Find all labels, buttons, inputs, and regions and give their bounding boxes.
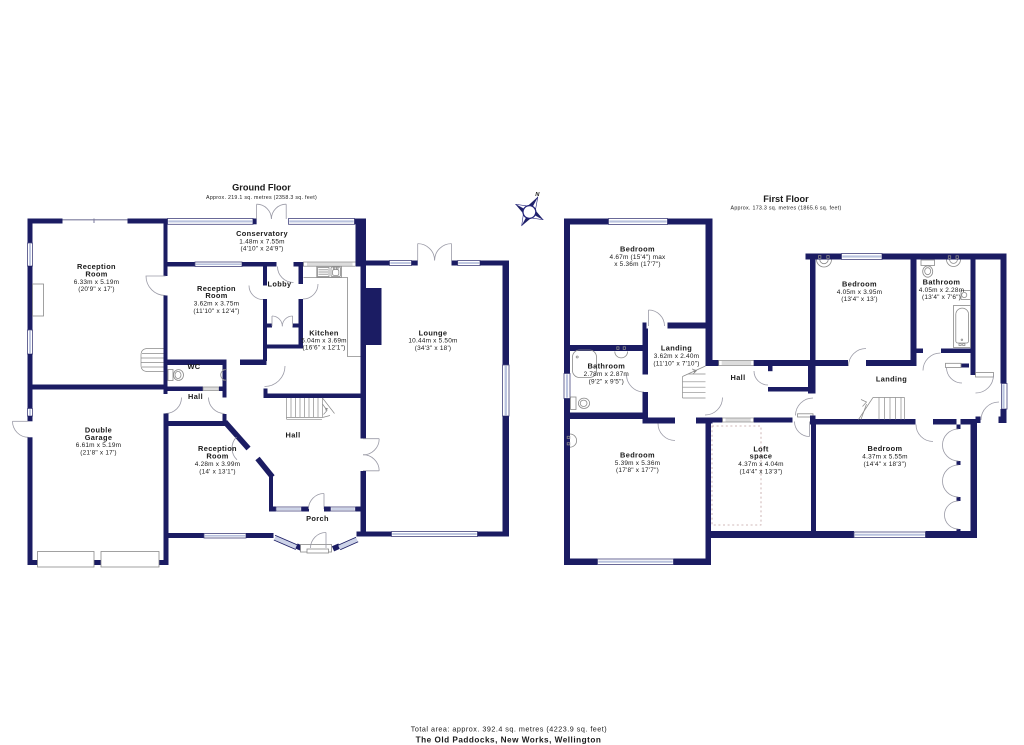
svg-text:5.39m x 5.36m: 5.39m x 5.36m <box>615 460 660 467</box>
svg-text:(9'2" x 9'5"): (9'2" x 9'5") <box>589 378 624 385</box>
svg-text:(13'4" x 13'): (13'4" x 13') <box>841 296 878 303</box>
svg-text:Hall: Hall <box>731 373 746 382</box>
svg-text:Landing: Landing <box>876 375 907 384</box>
svg-text:3.62m x 2.40m: 3.62m x 2.40m <box>654 353 699 360</box>
svg-text:First Floor: First Floor <box>763 194 809 204</box>
svg-text:Porch: Porch <box>306 514 329 523</box>
svg-text:N: N <box>535 192 540 198</box>
svg-text:4.05m x 2.28m: 4.05m x 2.28m <box>919 287 964 294</box>
svg-text:Approx. 219.1 sq. metres (2358: Approx. 219.1 sq. metres (2358.3 sq. fee… <box>206 195 317 201</box>
svg-text:Room: Room <box>206 452 228 461</box>
svg-text:4.37m x 4.04m: 4.37m x 4.04m <box>738 461 783 468</box>
svg-text:Bedroom: Bedroom <box>620 450 655 459</box>
svg-text:The Old Paddocks, New Works, W: The Old Paddocks, New Works, Wellington <box>416 736 602 745</box>
svg-text:4.37m x 5.55m: 4.37m x 5.55m <box>862 454 907 461</box>
svg-text:(4'10" x 24'9"): (4'10" x 24'9") <box>241 245 284 252</box>
svg-text:space: space <box>750 452 773 461</box>
svg-text:Total area: approx. 392.4 sq.: Total area: approx. 392.4 sq. metres (42… <box>411 725 607 734</box>
svg-text:Garage: Garage <box>85 433 113 442</box>
svg-text:2.78m x 2.87m: 2.78m x 2.87m <box>584 371 629 378</box>
svg-text:4.05m x 3.95m: 4.05m x 3.95m <box>837 289 882 296</box>
svg-text:(14' x 13'1"): (14' x 13'1") <box>199 468 236 475</box>
svg-text:x 5.36m (17'7"): x 5.36m (17'7") <box>614 261 661 268</box>
svg-text:Hall: Hall <box>286 431 301 440</box>
svg-text:4.67m (15'4") max: 4.67m (15'4") max <box>610 254 666 261</box>
svg-text:Kitchen: Kitchen <box>309 328 339 337</box>
svg-text:Bedroom: Bedroom <box>842 279 877 288</box>
svg-text:(11'10" x 7'10"): (11'10" x 7'10") <box>653 360 699 367</box>
svg-text:(20'9" x 17'): (20'9" x 17') <box>78 286 115 293</box>
svg-text:(16'6" x 12'1"): (16'6" x 12'1") <box>303 344 346 351</box>
svg-text:(14'4" x 18'3"): (14'4" x 18'3") <box>864 461 907 468</box>
svg-text:(17'8" x 17'7"): (17'8" x 17'7") <box>616 467 659 474</box>
svg-text:Hall: Hall <box>188 392 203 401</box>
svg-text:1.48m x 7.55m: 1.48m x 7.55m <box>239 238 284 245</box>
svg-text:(21'8" x 17'): (21'8" x 17') <box>80 450 117 457</box>
svg-text:6.61m x 5.19m: 6.61m x 5.19m <box>76 442 121 449</box>
svg-text:Lobby: Lobby <box>268 279 292 288</box>
svg-text:Bedroom: Bedroom <box>620 244 655 253</box>
svg-text:Ground Floor: Ground Floor <box>232 182 291 192</box>
svg-text:(11'10" x 12'4"): (11'10" x 12'4") <box>193 308 239 315</box>
svg-text:Lounge: Lounge <box>419 328 448 337</box>
svg-text:(34'3" x 18'): (34'3" x 18') <box>415 345 452 352</box>
svg-text:6.33m x 5.19m: 6.33m x 5.19m <box>74 279 119 286</box>
svg-text:Landing: Landing <box>661 344 692 353</box>
svg-text:Approx. 173.3 sq. metres (1865: Approx. 173.3 sq. metres (1865.6 sq. fee… <box>731 206 842 212</box>
svg-text:(13'4" x 7'6"): (13'4" x 7'6") <box>922 294 961 301</box>
svg-text:Bedroom: Bedroom <box>868 444 903 453</box>
svg-text:10.44m x 5.50m: 10.44m x 5.50m <box>408 338 457 345</box>
svg-text:4.28m x 3.99m: 4.28m x 3.99m <box>195 461 240 468</box>
svg-text:3.62m x 3.75m: 3.62m x 3.75m <box>194 301 239 308</box>
svg-text:Bathroom: Bathroom <box>587 362 625 371</box>
svg-text:Conservatory: Conservatory <box>236 229 288 238</box>
svg-text:(14'4" x 13'3"): (14'4" x 13'3") <box>740 469 783 476</box>
svg-text:WC: WC <box>187 362 200 371</box>
svg-text:Room: Room <box>205 291 227 300</box>
svg-text:Bathroom: Bathroom <box>923 277 961 286</box>
svg-text:Room: Room <box>85 269 107 278</box>
